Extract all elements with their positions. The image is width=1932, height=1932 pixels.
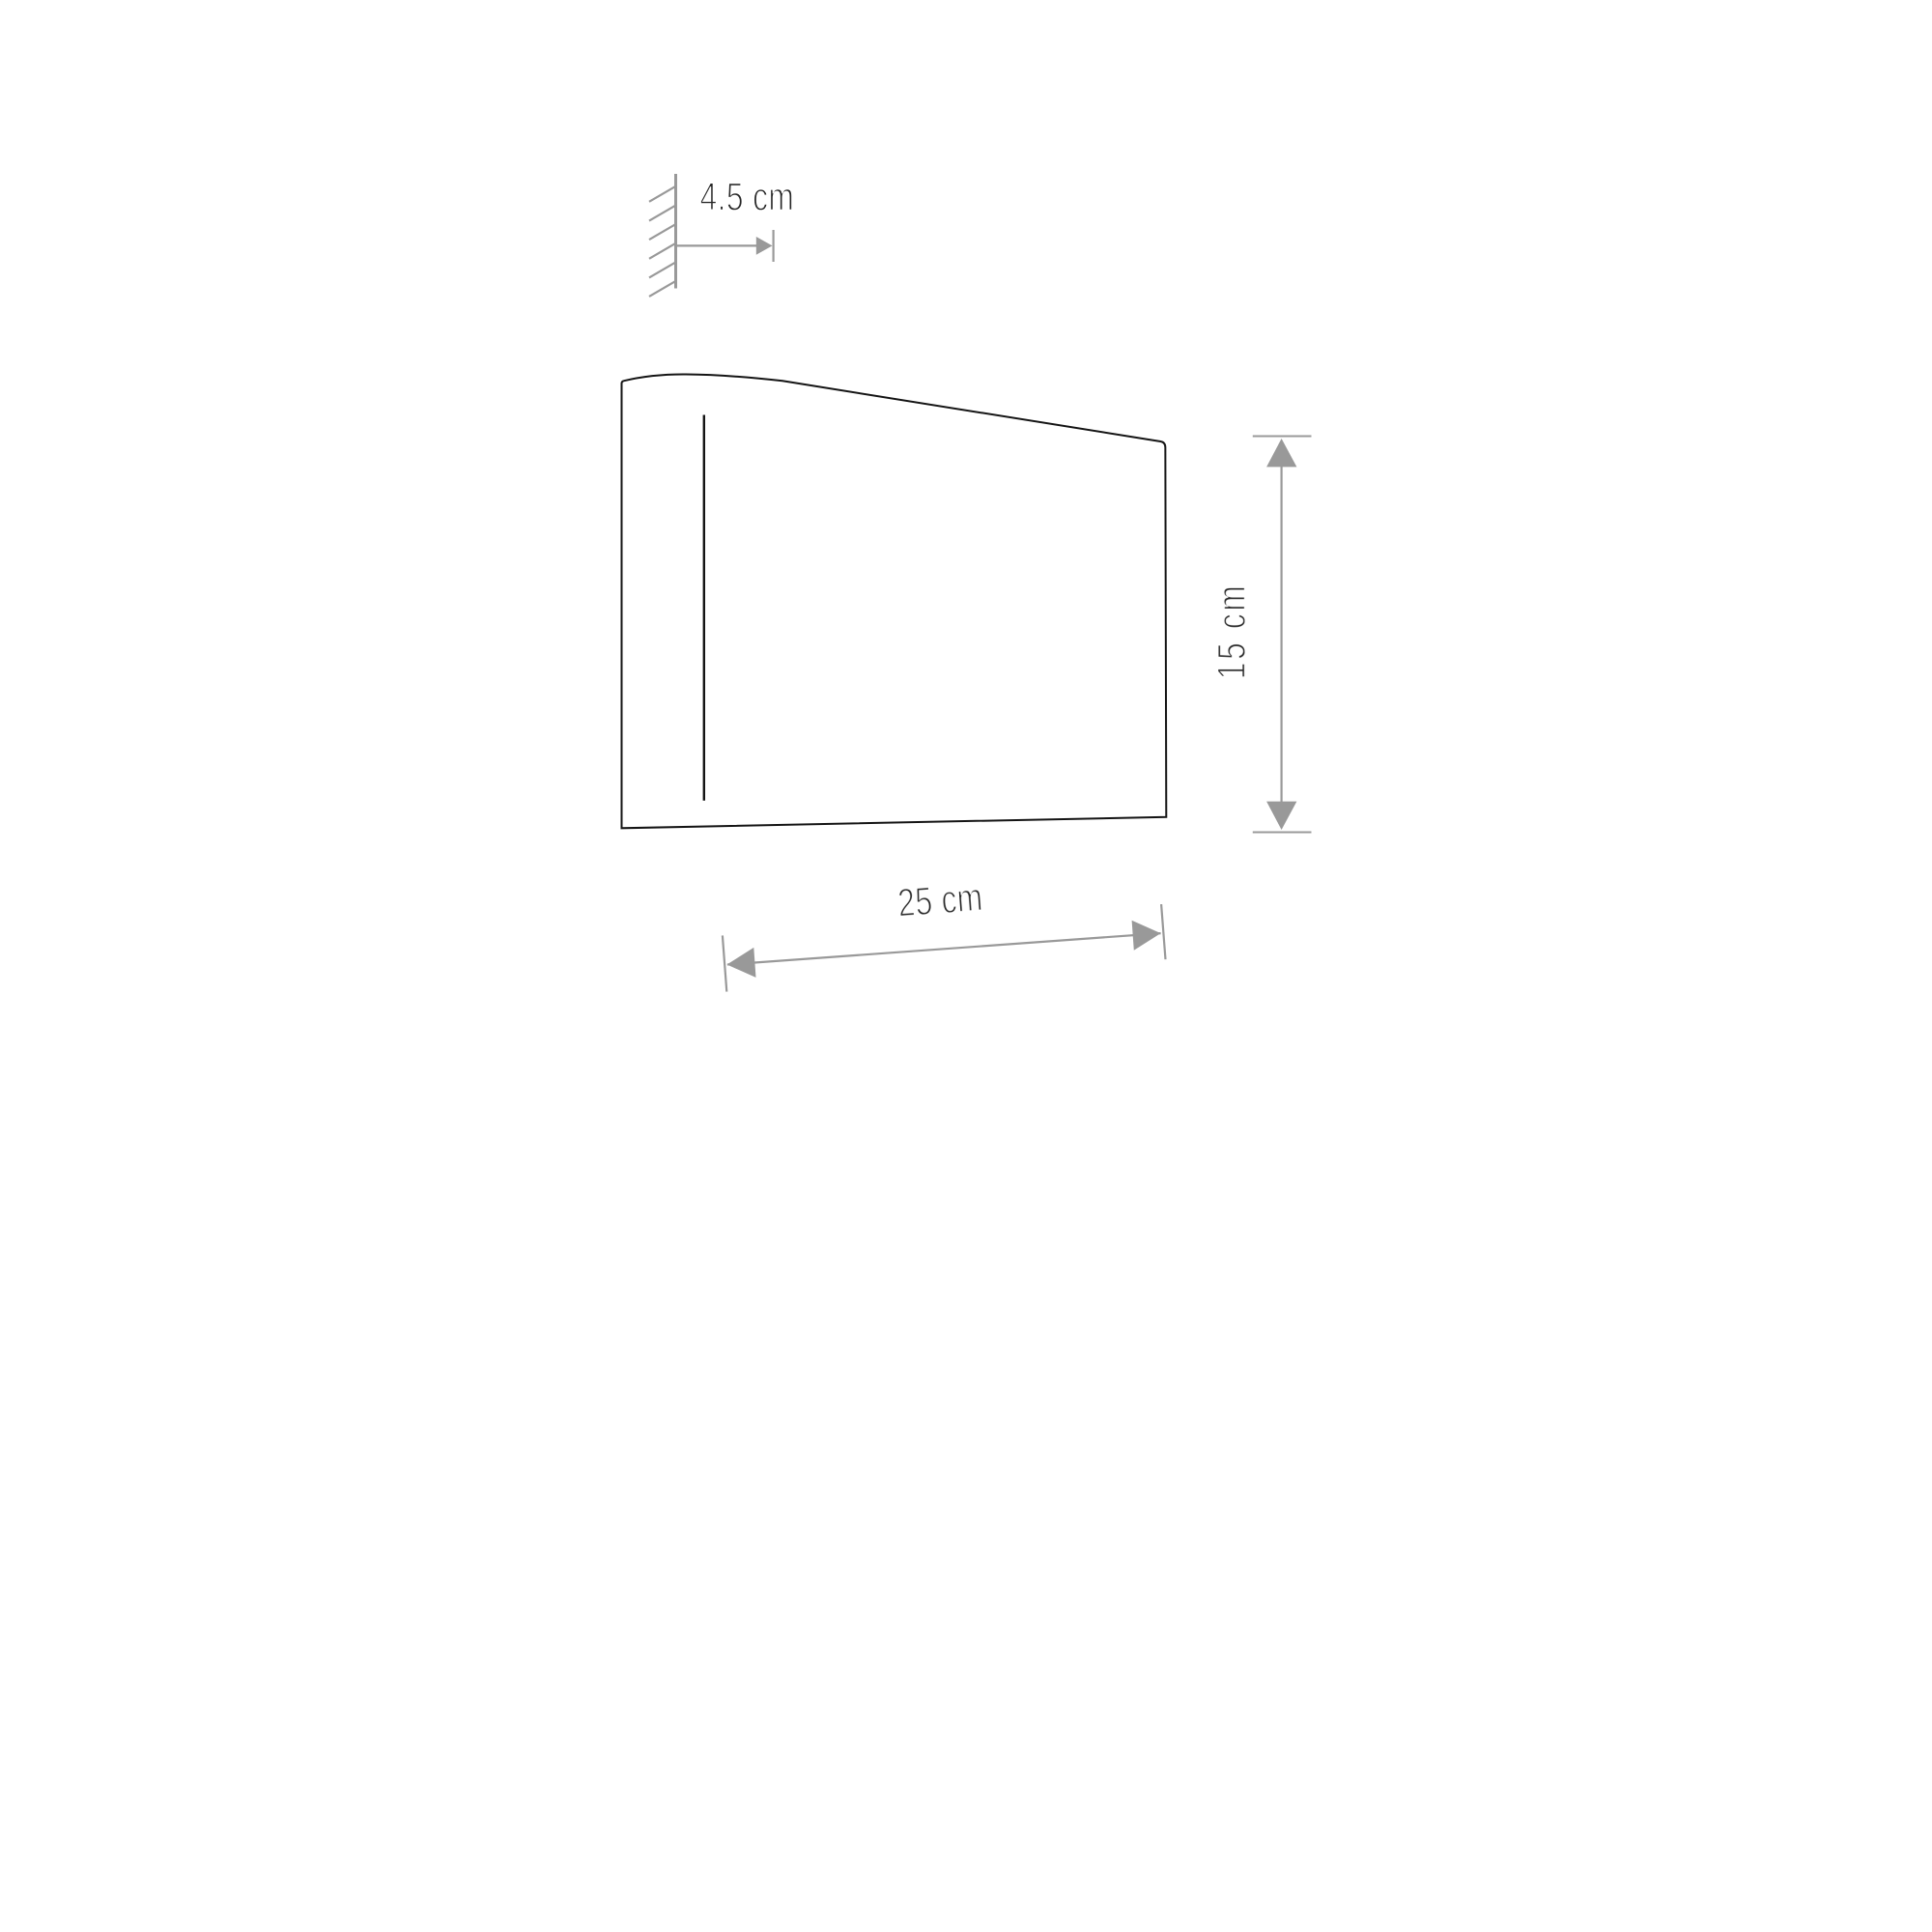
svg-text:4.5 cm: 4.5 cm: [700, 175, 795, 219]
svg-text:25 cm: 25 cm: [896, 874, 984, 924]
svg-text:15 cm: 15 cm: [1209, 583, 1254, 680]
